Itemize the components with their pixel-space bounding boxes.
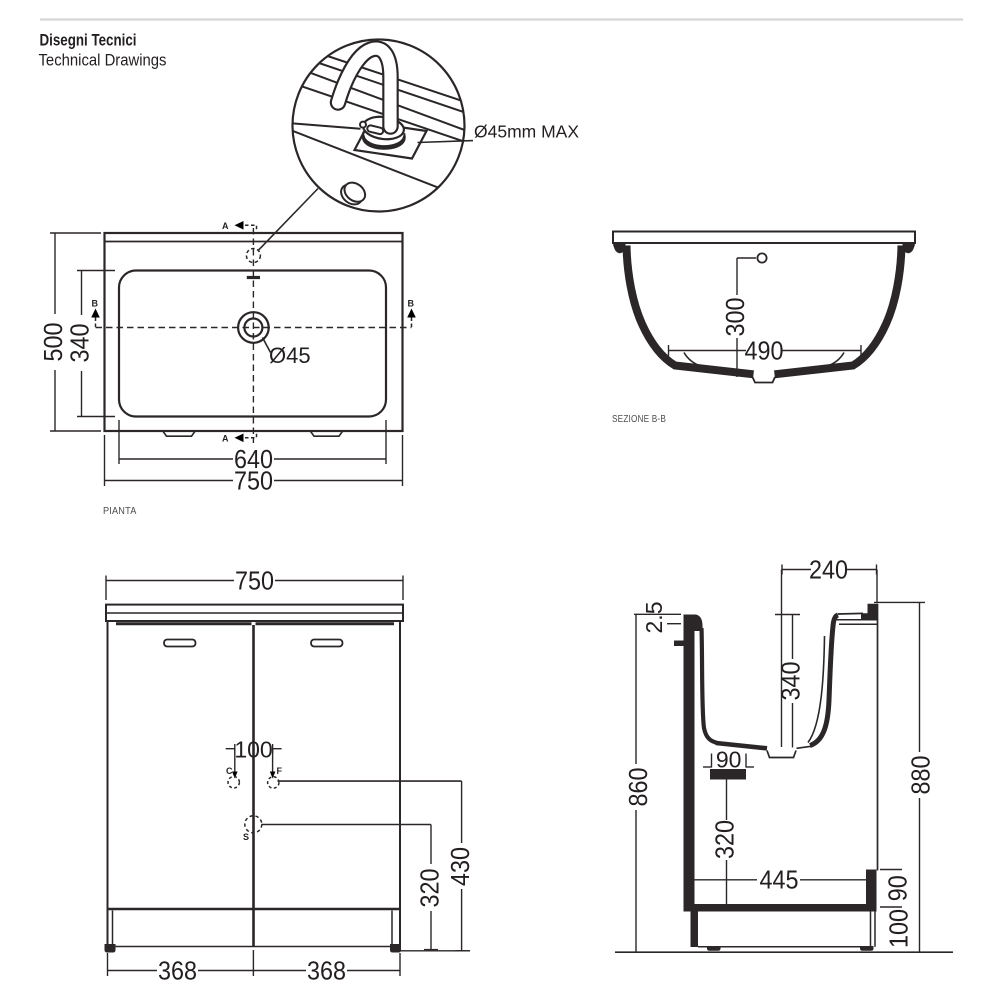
- svg-text:2.5: 2.5: [641, 602, 667, 634]
- svg-text:880: 880: [906, 756, 936, 795]
- svg-text:Ø45: Ø45: [269, 343, 311, 368]
- svg-text:A: A: [222, 221, 229, 231]
- svg-text:B: B: [408, 299, 415, 309]
- svg-text:100: 100: [884, 909, 914, 948]
- svg-text:320: 320: [415, 869, 445, 908]
- svg-text:340: 340: [776, 662, 806, 701]
- svg-text:A: A: [222, 434, 229, 444]
- svg-text:300: 300: [720, 298, 750, 337]
- svg-text:F: F: [277, 766, 283, 776]
- svg-text:750: 750: [235, 566, 274, 596]
- svg-text:SEZIONE B-B: SEZIONE B-B: [612, 414, 666, 425]
- svg-text:490: 490: [745, 336, 784, 366]
- svg-text:90: 90: [716, 747, 742, 773]
- svg-text:368: 368: [307, 956, 346, 986]
- svg-text:PIANTA: PIANTA: [103, 506, 137, 517]
- svg-text:750: 750: [234, 466, 273, 496]
- svg-text:Ø45mm MAX: Ø45mm MAX: [474, 122, 579, 142]
- svg-text:Technical Drawings: Technical Drawings: [39, 52, 167, 70]
- svg-text:S: S: [243, 832, 249, 842]
- svg-text:500: 500: [38, 323, 68, 362]
- svg-text:340: 340: [65, 324, 95, 363]
- svg-text:B: B: [92, 299, 99, 309]
- svg-text:240: 240: [809, 555, 848, 585]
- svg-text:C: C: [226, 766, 233, 776]
- svg-text:320: 320: [710, 820, 740, 859]
- svg-text:90: 90: [883, 875, 913, 901]
- svg-text:Disegni Tecnici: Disegni Tecnici: [40, 32, 137, 50]
- svg-text:860: 860: [623, 768, 653, 807]
- svg-text:100: 100: [234, 737, 272, 763]
- svg-text:368: 368: [158, 956, 197, 986]
- svg-text:430: 430: [445, 847, 475, 886]
- svg-text:445: 445: [760, 865, 799, 895]
